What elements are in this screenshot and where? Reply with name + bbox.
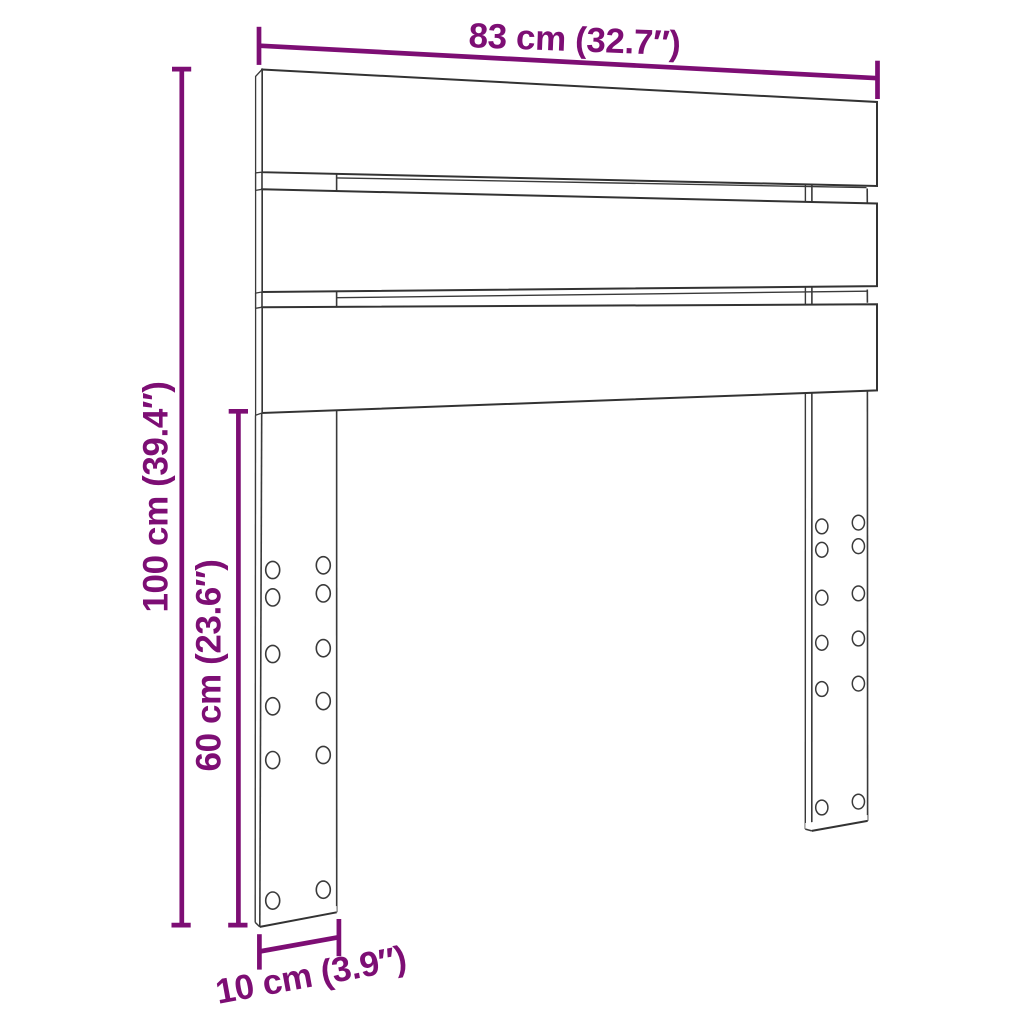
svg-text:60 cm (23.6″): 60 cm (23.6″) xyxy=(190,560,229,772)
svg-text:83 cm (32.7″): 83 cm (32.7″) xyxy=(468,16,681,63)
svg-text:100 cm (39.4″): 100 cm (39.4″) xyxy=(137,381,176,612)
